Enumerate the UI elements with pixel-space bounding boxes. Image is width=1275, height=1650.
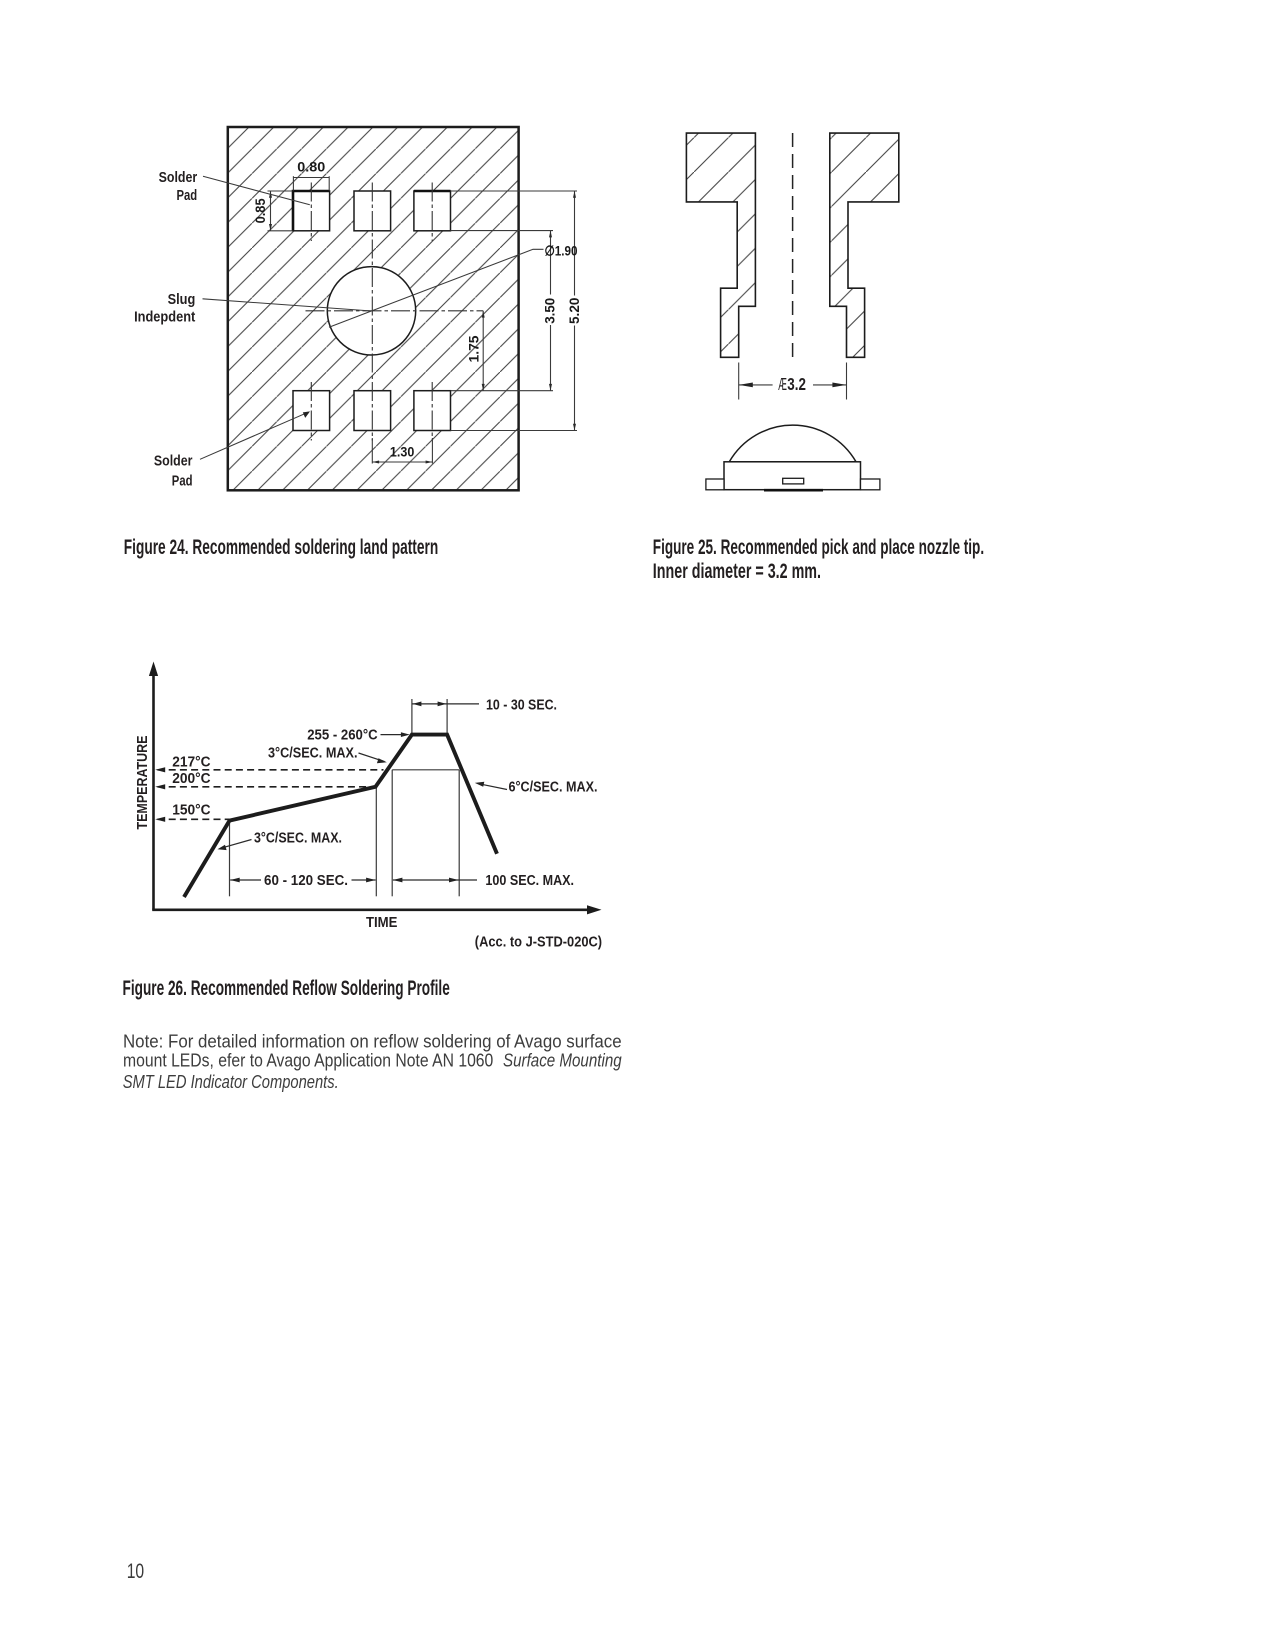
svg-text:1.30: 1.30: [390, 444, 415, 459]
svg-text:255 - 260°C: 255 - 260°C: [307, 728, 378, 744]
svg-text:Figure 26. Recommended Reflow: Figure 26. Recommended Reflow Soldering …: [123, 977, 450, 1000]
svg-text:3°C/SEC. MAX.: 3°C/SEC. MAX.: [254, 830, 342, 846]
svg-text:Indepdent: Indepdent: [134, 309, 195, 325]
svg-text:TEMPERATURE: TEMPERATURE: [135, 735, 151, 829]
svg-text:0.80: 0.80: [297, 159, 325, 174]
svg-text:Figure 24. Recommended solderi: Figure 24. Recommended soldering land pa…: [124, 536, 438, 559]
svg-text:150°C: 150°C: [172, 803, 211, 819]
svg-text:mount LEDs, efer to Avago Appl: mount LEDs, efer to Avago Application No…: [123, 1050, 493, 1071]
svg-text:5.20: 5.20: [567, 297, 582, 324]
svg-text:3.2: 3.2: [787, 374, 806, 394]
svg-text:Slug: Slug: [168, 292, 196, 308]
svg-text:3°C/SEC. MAX.: 3°C/SEC. MAX.: [268, 745, 358, 761]
svg-text:SMT LED Indicator Components.: SMT LED Indicator Components.: [123, 1071, 339, 1092]
svg-text:3.50: 3.50: [542, 297, 557, 323]
svg-text:60 - 120 SEC.: 60 - 120 SEC.: [264, 873, 348, 889]
svg-text:(Acc. to J-STD-020C): (Acc. to J-STD-020C): [475, 935, 602, 951]
svg-text:Inner diameter = 3.2 mm.: Inner diameter = 3.2 mm.: [653, 560, 821, 583]
svg-text:Solder: Solder: [159, 170, 198, 186]
svg-text:Solder: Solder: [154, 454, 193, 470]
svg-text:0.85: 0.85: [253, 198, 268, 223]
svg-text:10: 10: [127, 1560, 144, 1583]
svg-text:Note: For detailed information: Note: For detailed information on reflow…: [123, 1031, 622, 1052]
svg-text:Figure 25. Recommended pick an: Figure 25. Recommended pick and place no…: [653, 536, 984, 559]
svg-text:Pad: Pad: [172, 473, 193, 489]
svg-text:Æ: Æ: [778, 374, 787, 394]
svg-text:∅1.90: ∅1.90: [545, 244, 578, 259]
svg-text:TIME: TIME: [366, 915, 398, 931]
svg-text:217°C: 217°C: [172, 755, 211, 771]
svg-text:200°C: 200°C: [172, 771, 211, 787]
svg-text:6°C/SEC. MAX.: 6°C/SEC. MAX.: [509, 780, 598, 796]
svg-text:100 SEC. MAX.: 100 SEC. MAX.: [485, 873, 574, 889]
svg-text:1.75: 1.75: [466, 335, 481, 362]
svg-text:10 - 30 SEC.: 10 - 30 SEC.: [486, 697, 557, 713]
svg-text:Surface Mounting: Surface Mounting: [503, 1050, 622, 1071]
svg-text:Pad: Pad: [177, 188, 198, 204]
